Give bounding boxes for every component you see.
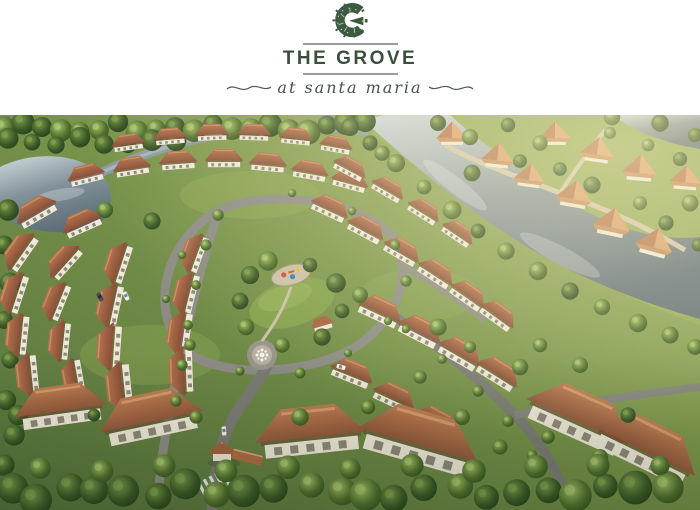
vignette-overlay (0, 115, 700, 510)
brand-name: THE GROVE (283, 48, 417, 70)
tagline-left-flourish-icon (226, 82, 272, 94)
aerial-render (0, 115, 700, 510)
tagline: at santa maria (226, 78, 473, 97)
header-divider-bottom (303, 73, 398, 75)
grove-leaf-monogram-icon (328, 2, 372, 40)
community-aerial-image (0, 115, 700, 510)
tagline-right-flourish-icon (428, 82, 474, 94)
header-divider-top (303, 43, 398, 45)
tagline-text: at santa maria (277, 78, 422, 97)
brand-header: THE GROVE at santa maria (0, 0, 700, 115)
